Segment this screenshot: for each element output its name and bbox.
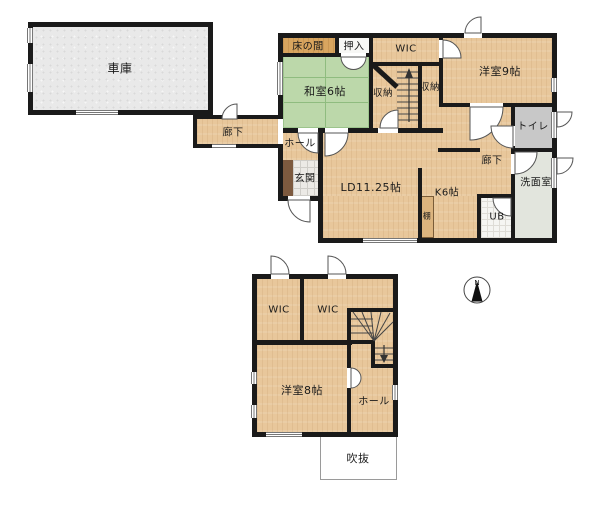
room-label-washitsu: 和室6帖: [304, 83, 346, 99]
room-label-storage-right: 収納: [420, 79, 440, 93]
door-arc: [271, 256, 289, 274]
room-label-tokonoma: 床の間: [292, 38, 324, 53]
room-label-living-dining: LD11.25帖: [340, 179, 401, 195]
room-label-bath: UB: [489, 212, 504, 223]
room-label-storage-left: 収納: [373, 85, 393, 99]
room-label-bedroom9: 洋室9帖: [479, 63, 521, 79]
room-label-bedroom8: 洋室8帖: [281, 382, 323, 398]
room-label-washroom: 洗面室: [520, 174, 552, 189]
label-shelf: 棚: [423, 211, 432, 222]
stairs-2f-treads: [351, 312, 393, 360]
window-arc: [557, 158, 573, 174]
room-label-kitchen: K6帖: [435, 184, 459, 199]
door-arc: [325, 133, 348, 156]
room-label-wic-2f-left: WIC: [268, 305, 289, 316]
room-label-toilet: トイレ: [517, 118, 549, 133]
compass-n-label: N: [474, 279, 479, 287]
window-arc: [557, 112, 572, 127]
room-label-hall-2f: ホール: [358, 393, 390, 408]
room-label-oshiire: 押入: [344, 38, 365, 53]
door-arc: [380, 110, 398, 128]
room-label-wic-2f-right: WIC: [317, 305, 338, 316]
room-label-corridor-garage: 廊下: [223, 124, 244, 139]
room-label-void: 吹抜: [347, 450, 370, 466]
room-label-genkan: 玄関: [295, 170, 316, 185]
door-arc: [491, 126, 513, 148]
room-label-corridor-1f: 廊下: [482, 152, 503, 167]
door-arc: [351, 368, 361, 388]
door-arc: [465, 17, 481, 33]
door-arc: [288, 200, 310, 222]
door-arc: [443, 40, 461, 58]
stairs-1f-treads: [397, 72, 418, 120]
room-label-garage: 車庫: [107, 60, 132, 77]
stair-diagonal-wall: [372, 64, 397, 87]
room-label-wic-1f: WIC: [395, 44, 416, 55]
room-label-hall-1f: ホール: [284, 135, 316, 150]
compass: N: [464, 277, 490, 303]
door-arc: [328, 256, 346, 274]
door-arc: [515, 152, 537, 174]
floorplan-canvas: N 車庫 廊下 床の間 押入 和室6帖 WIC 収納 収納 洋室9帖 トイレ ホ…: [0, 0, 600, 506]
door-arc: [341, 57, 366, 70]
door-arc: [222, 104, 237, 119]
